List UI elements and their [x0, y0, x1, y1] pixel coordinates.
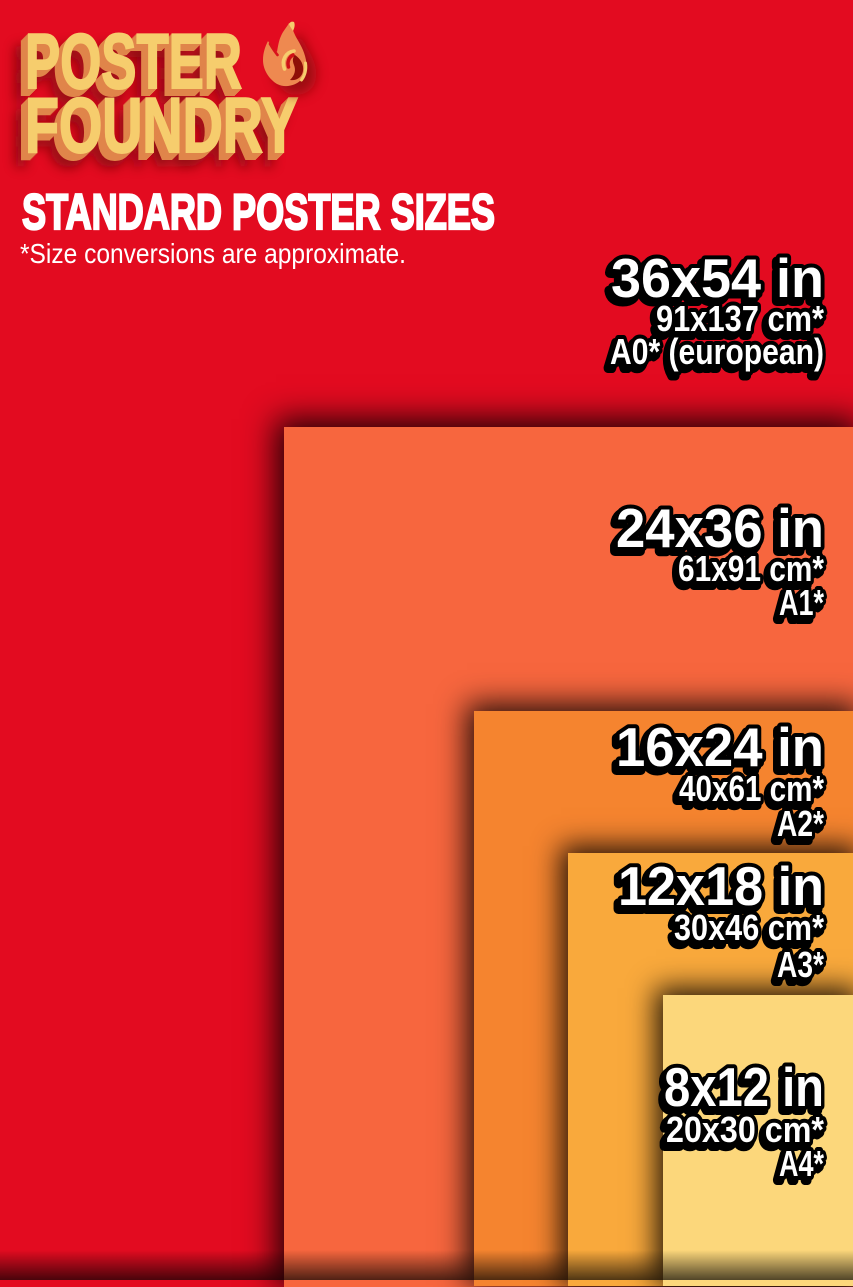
svg-text:STANDARD POSTER SIZES: STANDARD POSTER SIZES — [22, 184, 495, 240]
svg-text:A4*: A4* — [779, 1143, 824, 1184]
svg-text:A2*: A2* — [777, 803, 824, 844]
svg-text:A3*: A3* — [777, 944, 824, 985]
svg-text:*Size conversions are approxim: *Size conversions are approximate. — [20, 238, 406, 269]
svg-text:A0* (european): A0* (european) — [610, 331, 824, 372]
svg-text:30x46 cm*: 30x46 cm* — [674, 907, 824, 948]
svg-text:A1*: A1* — [779, 582, 824, 623]
